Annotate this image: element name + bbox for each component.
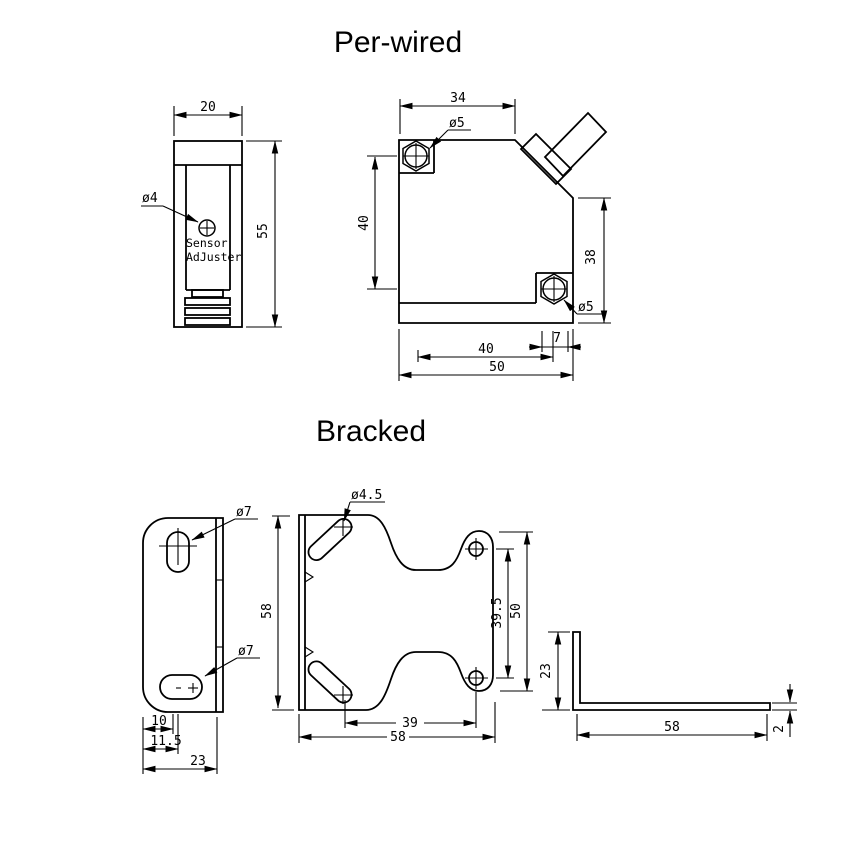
leader-line [205,658,237,676]
dim-text: 58 [390,730,406,745]
hole-dia-text: ø5 [578,300,594,315]
hole-dia-text: ø7 [236,505,252,520]
hole-dia-text: ø7 [238,644,254,659]
dim-text: 40 [357,215,372,231]
dim-10: 10 [143,714,173,729]
vent-bar [185,298,230,305]
hole-dia-text: ø4 [142,191,158,206]
leader-line [163,206,198,222]
dim-text: 11.5 [150,734,181,749]
dim-text: 20 [200,100,216,115]
leader-line [192,519,235,540]
dim-23: 23 [143,754,217,769]
bracket-profile-view: 23 58 2 [539,632,797,741]
connector-notch [192,290,223,297]
dim-bottom-50: 50 [399,360,573,375]
technical-drawing-canvas: Per-wired Bracked Sensor AdJuster 20 55 [0,0,860,860]
dim-text: 58 [260,603,275,619]
bend-mark-triangle [305,572,313,582]
dim-bottom-40: 40 [418,342,553,357]
dim-text: 50 [509,603,524,619]
dim-text: 2 [772,725,787,733]
label-dia7-bottom: ø7 [205,644,260,676]
dim-text: 55 [256,223,271,239]
adjuster-label-line2: AdJuster [186,250,241,264]
hole-dia-text: ø4.5 [351,488,382,503]
vent-bar [185,318,230,325]
dim-text: 39 [402,716,418,731]
bottom-dims: 7 40 50 [399,329,581,381]
label-dia5-top: ø5 [430,116,471,148]
dim-text: 23 [539,663,554,679]
bracket-front-view: ø4.5 58 39.5 50 39 [260,488,533,745]
side-bottom-dims: 10 11.5 23 [143,714,217,774]
section-title-per-wired: Per-wired [334,26,462,59]
drawing-svg: Per-wired Bracked Sensor AdJuster 20 55 [0,0,860,860]
dim-width-20: 20 [174,100,242,136]
dim-text: 39.5 [490,597,505,628]
dim-height-55: 55 [246,141,282,327]
dim-leg-23: 23 [539,632,570,710]
bracket-profile-outline [573,632,770,710]
leader-line [430,130,448,148]
dim-text: 58 [664,720,680,735]
label-dia4: ø4 [141,191,198,222]
dim-text: 34 [450,91,466,106]
dim-text: 50 [489,360,505,375]
cable [545,113,606,176]
leader-line [344,502,350,521]
dim-height-58: 58 [260,516,294,710]
dim-left-40: 40 [357,157,375,289]
bracket-front-outline [299,515,493,710]
diagonal-slot-bottom [305,658,355,706]
vent-bar [185,308,230,315]
dim-text: 7 [553,331,561,346]
bracket-side-outline [143,518,223,712]
sensor-front-outline [399,140,573,323]
slot-horizontal [160,675,202,699]
label-dia7-top: ø7 [192,505,258,540]
dim-thickness-2: 2 [772,684,797,737]
dim-text: 40 [478,342,494,357]
sensor-side-view: Sensor AdJuster 20 55 ø4 [141,100,282,327]
dim-text: 23 [190,754,206,769]
bend-mark-triangle [305,647,313,657]
dim-text: 38 [584,249,599,265]
dim-text: 10 [151,714,167,729]
dim-11-5: 11.5 [143,734,182,749]
section-title-bracked: Bracked [316,415,426,448]
sensor-front-view: 34 ø5 40 38 ø5 [357,91,611,381]
bracket-side-view: ø7 ø7 10 11.5 23 [143,505,260,774]
label-dia4-5: ø4.5 [344,488,385,521]
dim-39: 39 [345,692,476,731]
dim-leg-58: 58 [577,714,767,741]
hole-dia-text: ø5 [449,116,465,131]
diagonal-slot-top [305,516,355,564]
adjuster-label-line1: Sensor [186,236,228,250]
label-dia5-bottom: ø5 [564,300,606,315]
leader-line [564,300,577,314]
